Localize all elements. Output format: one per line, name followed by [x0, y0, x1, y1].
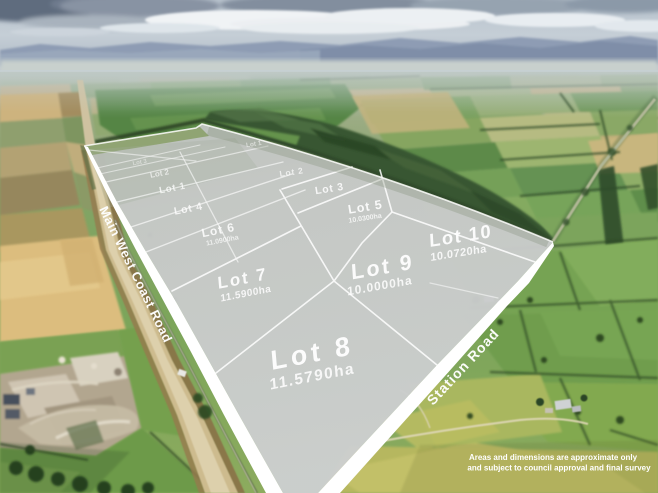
svg-text:Areas and dimensions are appro: Areas and dimensions are approximate onl… — [469, 453, 638, 462]
svg-text:and subject to council approva: and subject to council approval and fina… — [467, 464, 651, 473]
